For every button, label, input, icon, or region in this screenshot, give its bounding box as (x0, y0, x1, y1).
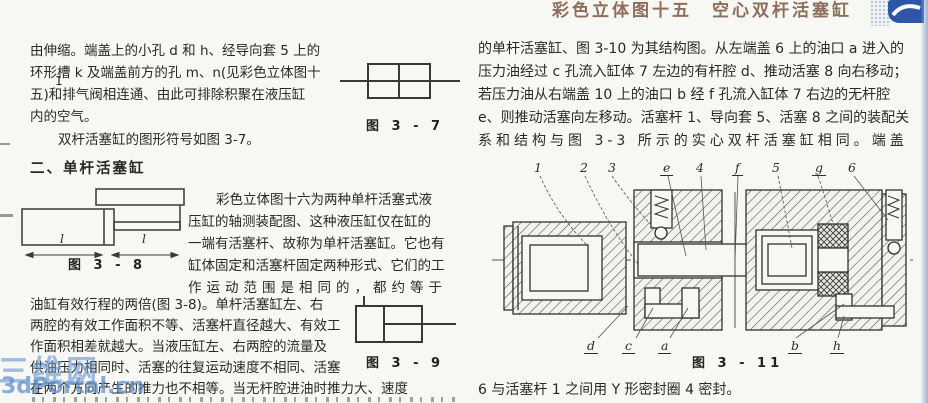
fig8-dim-label: l (142, 231, 146, 246)
figure-3-11-drawing (488, 176, 920, 338)
left-paragraph3-line: 缸体固定和活塞杆固定两种形式、它们的工 (188, 257, 445, 275)
left-paragraph1-line: 内的空气。 (30, 108, 98, 126)
left-paragraph3-line: 作运动范围是相同的，都约等于 (188, 279, 447, 297)
figure-3-9 (346, 296, 456, 348)
margin-dash (0, 214, 13, 217)
figure-3-9-caption: 图 3 - 9 (366, 352, 444, 371)
right-paragraph-line: 系和结构与图 3-3 所示的实心双杆活塞缸相同。端盖 (478, 132, 908, 151)
left-paragraph4-line: 油缸有效行程的两倍(图 3-8)。单杆活塞缸左、右 (30, 296, 323, 314)
figure-3-7 (340, 58, 460, 110)
site-logo-icon (888, 0, 924, 23)
figure-3-11-caption: 图 3 - 11 (692, 352, 783, 371)
left-paragraph1-line: 环形槽 k 及端盖前方的孔 m、n(见彩色立体图十 (30, 64, 321, 82)
figure-3-7-caption: 图 3 - 7 (366, 115, 444, 134)
section-heading: 二、单杆活塞缸 (30, 160, 146, 178)
fig11-callout-f: f (732, 160, 743, 176)
fig11-callout-6: 6 (848, 160, 856, 175)
page-header-title: 彩色立体图十五 空心双杆活塞缸 (552, 0, 852, 21)
right-paragraph-line: e、则推动活塞向左移动。活塞杆 1、导向套 5、活塞 8 之间的装配关 (478, 109, 909, 128)
right-paragraph-line: 的单杆活塞缸、图 3-10 为其结构图。从左端盖 6 上的油口 a 进入的 (478, 40, 904, 59)
fig11-callout-4: 4 (696, 160, 704, 175)
left-paragraph1-line: 五)和排气阀相连通、由此可排除积聚在液压缸 (30, 86, 305, 104)
logo-swoosh-icon (888, 0, 924, 23)
figure-3-8-drawing (16, 185, 194, 265)
page-edge-strip (921, 0, 928, 403)
logo-speckle-texture (870, 0, 890, 26)
figure-3-7-drawing (340, 58, 460, 110)
left-paragraph3-line: 一端有活塞杆、故称为单杆活塞缸。它也有 (188, 235, 445, 253)
left-paragraph4-line: 两腔的有效工作面积不等、活塞杆直径越大、有效工 (30, 317, 341, 335)
fig8-dim-label: l (60, 231, 64, 246)
left-paragraph1-line: 由伸缩。端盖上的小孔 d 和 h、经导向套 5 上的 (30, 42, 320, 60)
fig11-callout-5: 5 (772, 160, 780, 175)
figure-3-8: l l (16, 185, 194, 265)
fig11-callout-2: 2 (580, 160, 588, 175)
left-paragraph3-line: 彩色立体图十六为两种单杆活塞式液 (216, 191, 432, 209)
left-paragraph2-line: 双杆活塞缸的图形符号如图 3-7。 (58, 131, 260, 149)
fig11-callout-1: 1 (534, 160, 542, 175)
figure-3-8-caption: 图 3 - 8 (68, 254, 146, 273)
scanned-book-page: 彩色立体图十五 空心双杆活塞缸 1 由伸缩。端盖上的小孔 d 和 h、经导向套 … (0, 0, 928, 403)
fig11-callout-a: a (658, 338, 671, 354)
fig11-callout-h: h (830, 338, 844, 354)
fig11-callout-e: e (660, 160, 673, 176)
right-bottom-line: 6 与活塞杆 1 之间用 Y 形密封圈 4 密封。 (478, 381, 740, 400)
right-paragraph-line: 压力油经过 c 孔流入缸体 7 左边的有杆腔 d、推动活塞 8 向右移动； (478, 63, 908, 82)
fig11-callout-g: g (812, 160, 826, 176)
right-paragraph-line: 若压力油从右端盖 10 上的油口 b 经 f 孔流入缸体 7 右边的无杆腔 (478, 86, 890, 105)
fig11-callout-3: 3 (608, 160, 616, 175)
figure-3-9-drawing (346, 296, 456, 348)
fig11-callout-b: b (788, 338, 802, 354)
left-paragraph3-line: 压缸的轴测装配图、这种液压缸仅在缸的 (188, 213, 431, 231)
fig11-callout-d: d (584, 338, 598, 354)
figure-3-11: 1 2 3 e 4 f 5 g 6 (488, 160, 920, 374)
fig11-callout-c: c (622, 338, 635, 354)
margin-dash (0, 143, 10, 145)
watermark-en-text: 3dPortal.cn (1, 374, 144, 399)
